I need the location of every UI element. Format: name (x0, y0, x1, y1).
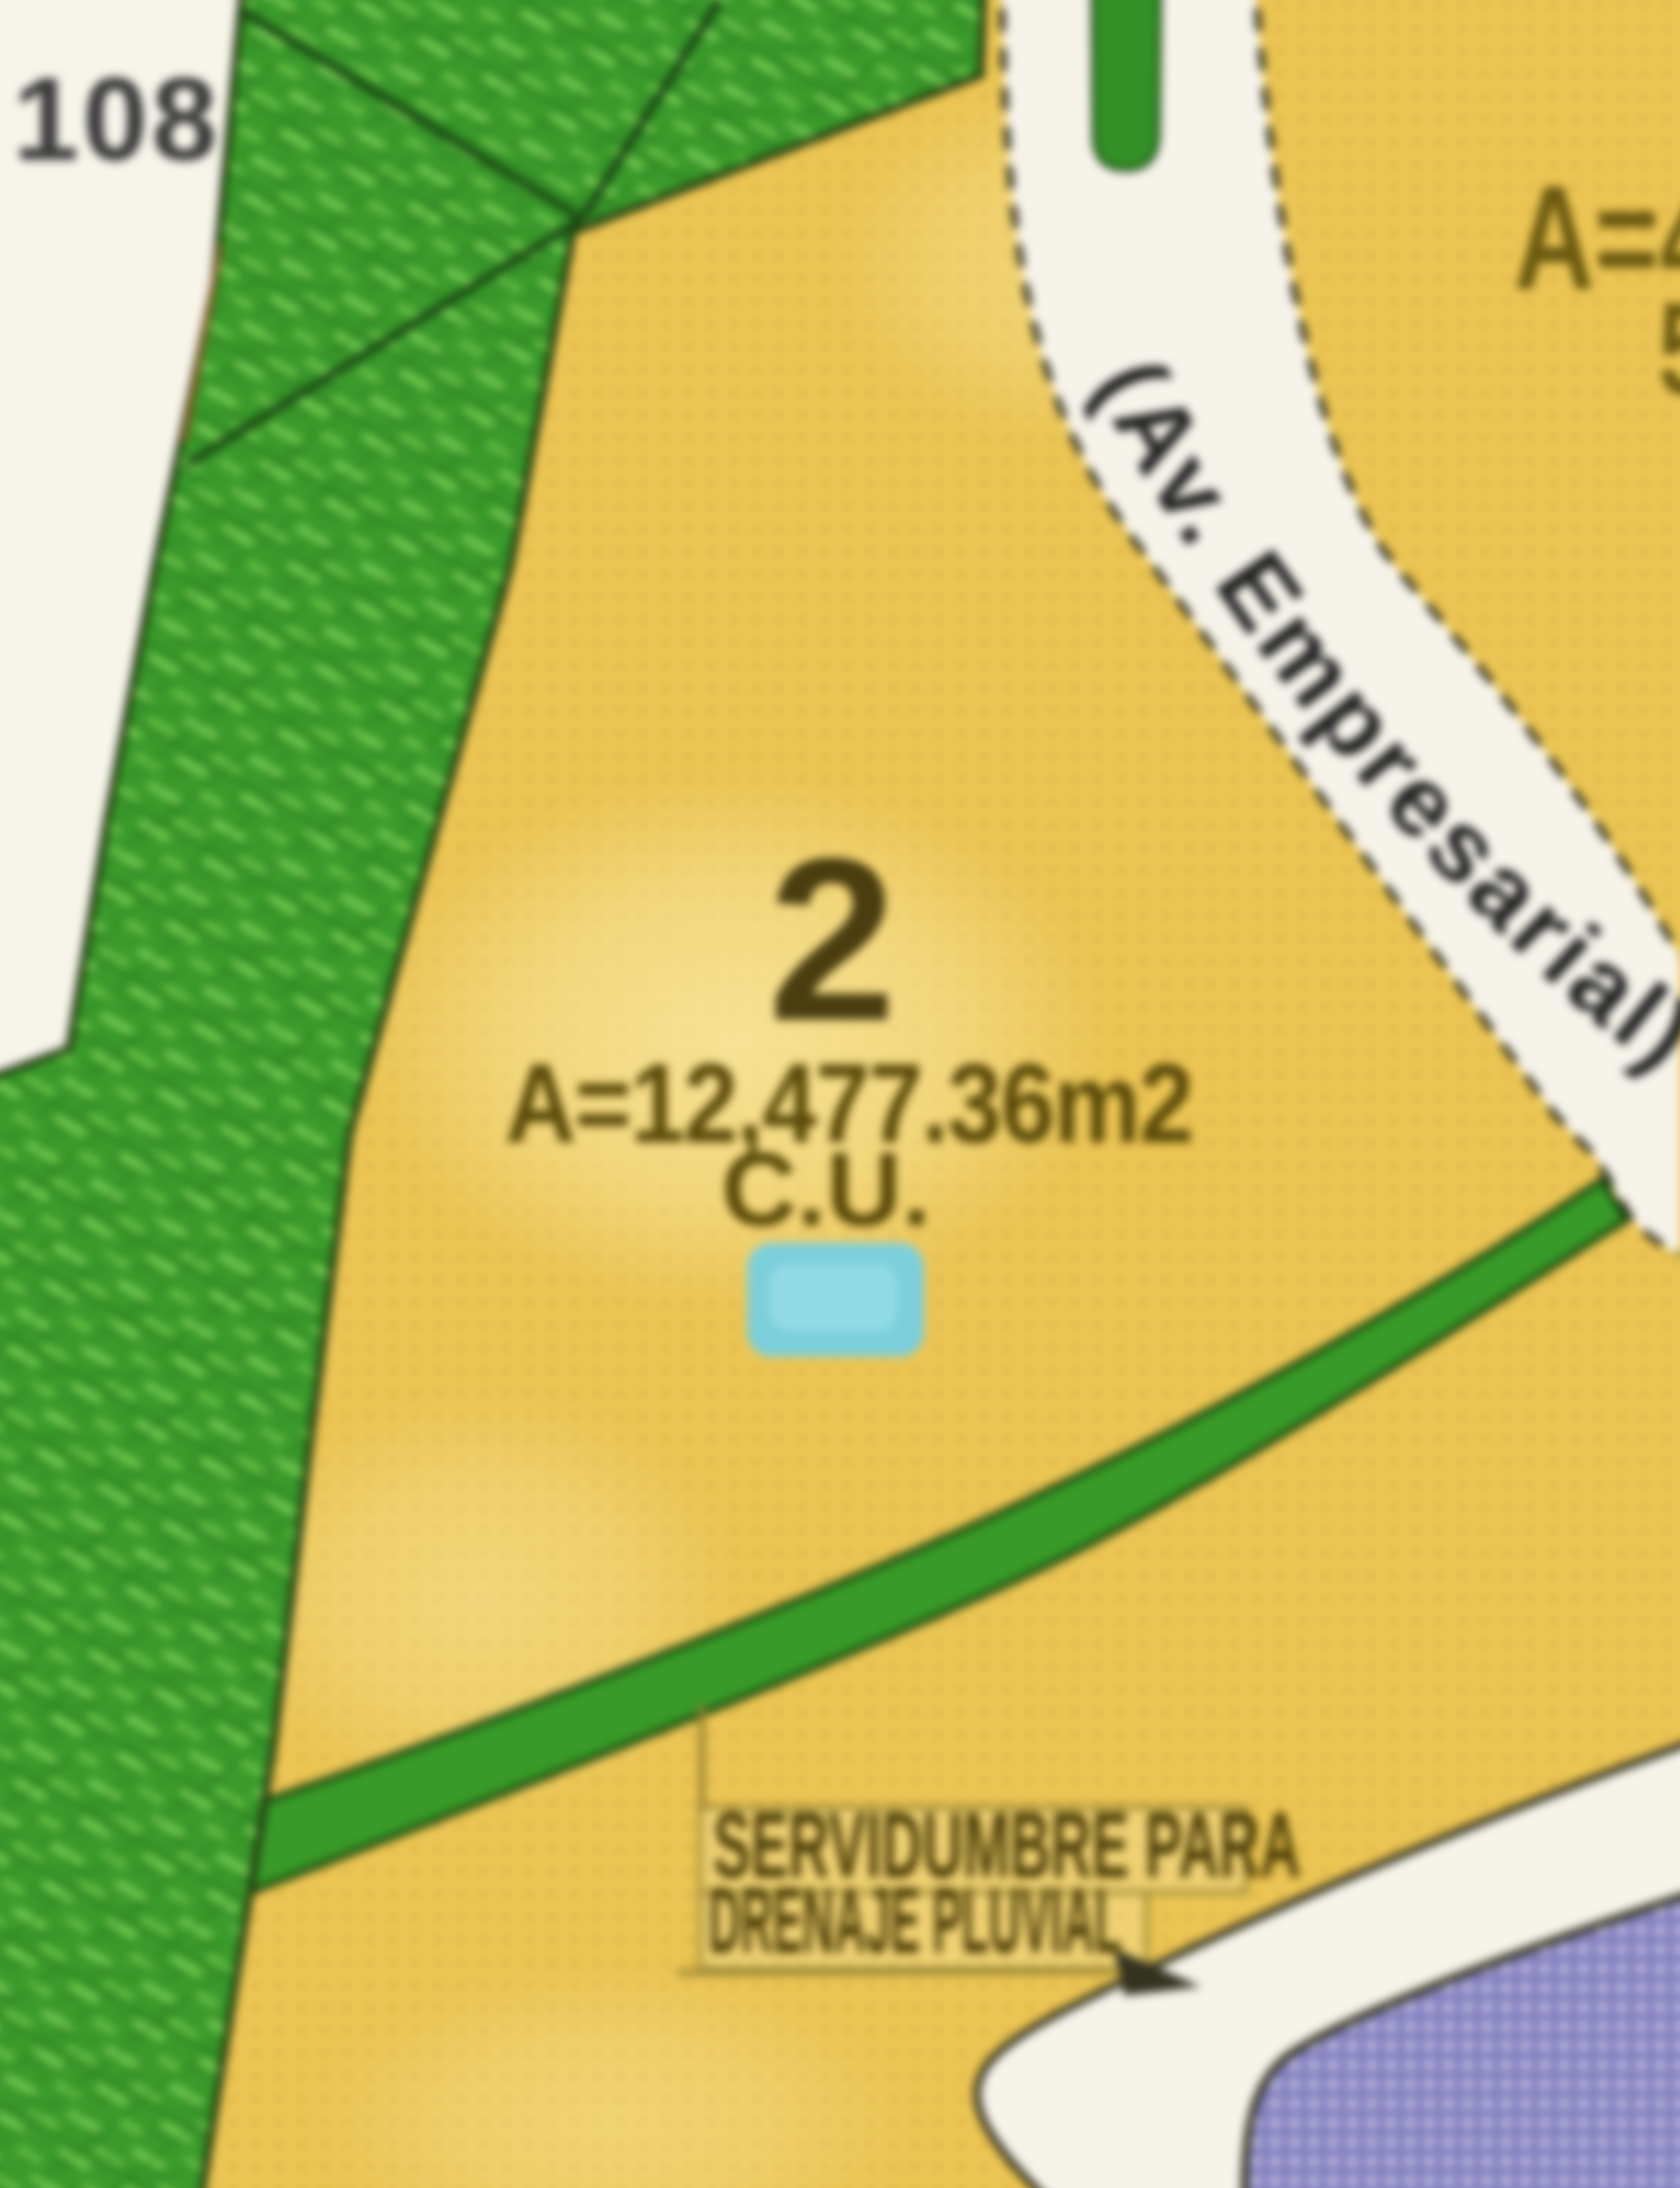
svg-text:5: 5 (1658, 276, 1680, 422)
svg-text:108: 108 (13, 53, 220, 185)
svg-text:2: 2 (768, 810, 897, 1069)
svg-text:C.U.: C.U. (721, 1130, 931, 1248)
svg-text:A=4: A=4 (1514, 154, 1680, 320)
svg-text:DRENAJE PLUVIAL: DRENAJE PLUVIAL (709, 1867, 1121, 1973)
